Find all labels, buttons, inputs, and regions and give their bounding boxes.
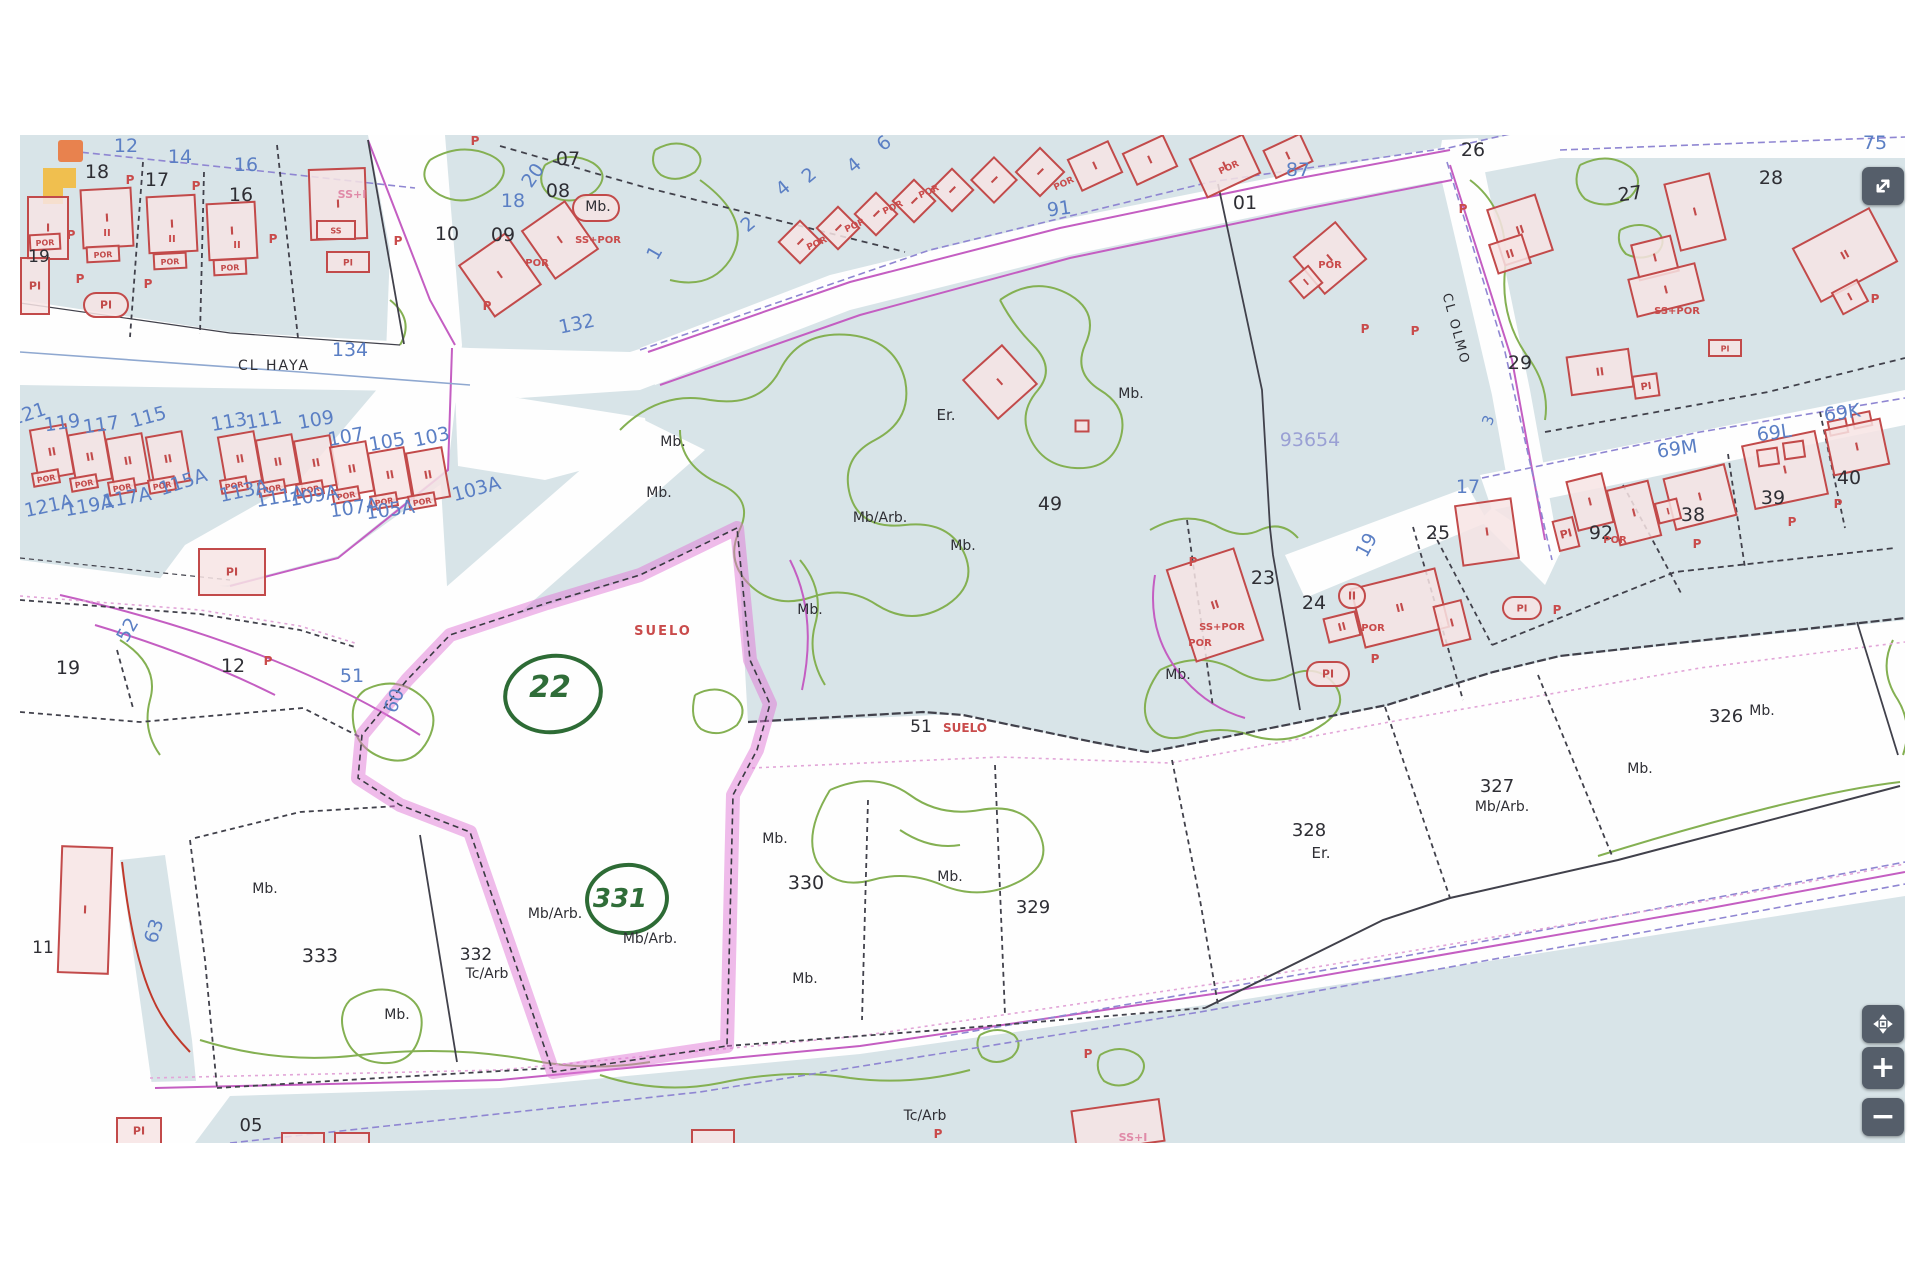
house-label: I (46, 222, 50, 235)
map-label: 08 (546, 180, 570, 202)
map-label: P (1084, 1047, 1093, 1061)
map-label: SS+POR (575, 235, 621, 246)
house: I (207, 202, 258, 260)
house-label: POR (93, 250, 112, 260)
map-label: 329 (1016, 897, 1050, 918)
map-label: P (934, 1127, 943, 1141)
house-label: SS (330, 226, 341, 236)
house-label: PI (343, 259, 353, 269)
map-label: Mb. (797, 602, 822, 618)
map-label: P (126, 173, 135, 187)
map-label: 87 (1286, 159, 1310, 181)
map-label: 24 (1302, 592, 1326, 614)
map-label: Mb. (1627, 761, 1652, 777)
map-label: P (394, 234, 403, 248)
house: II (1339, 584, 1365, 608)
map-label: Mb. (762, 831, 787, 847)
map-label: P (67, 228, 76, 242)
map-label: Mb. (937, 869, 962, 885)
map-label: 328 (1292, 820, 1326, 841)
map-label: P (1361, 322, 1370, 336)
house-label: PI (226, 566, 238, 579)
house: POR (87, 246, 120, 263)
map-label: 333 (302, 945, 338, 967)
house (1757, 448, 1779, 467)
map-label: Mb. (1165, 667, 1190, 683)
map-label: 01 (1233, 192, 1257, 214)
map-label: P (1459, 202, 1468, 216)
house-label: I (170, 217, 175, 230)
house-label: I (230, 224, 235, 237)
map-label: P (1871, 292, 1880, 306)
map-label: 327 (1480, 776, 1514, 797)
map-label: Tc/Arb (903, 1108, 947, 1124)
map-label: 75 (1863, 132, 1887, 154)
map-label: 12 (114, 135, 138, 157)
map-label: Mb. (1118, 386, 1143, 402)
orange-plan-mark (58, 140, 83, 162)
house-label: II (1348, 590, 1356, 603)
map-label: 330 (788, 872, 824, 894)
house-label: PI (29, 280, 41, 293)
map-label: Mb/Arb. (623, 931, 677, 947)
map-label: 91 (1046, 196, 1073, 221)
house-label: PI (100, 299, 112, 312)
house-label: PI (1322, 668, 1334, 681)
map-label: 27 (1617, 181, 1644, 206)
map-label: 29 (1508, 352, 1532, 374)
house: PI (1709, 340, 1741, 356)
zoom-out-label: − (1870, 1102, 1895, 1132)
map-label: P (1411, 324, 1420, 338)
map-label: SS+POR (1654, 306, 1700, 317)
house (1076, 421, 1089, 432)
map-label: P (1788, 515, 1797, 529)
map-label: Er. (936, 406, 955, 424)
map-label: CL HAYA (238, 358, 310, 374)
map-label: 14 (168, 146, 192, 168)
house: POR (214, 259, 247, 276)
house: I (1455, 498, 1519, 565)
house-label: POR (160, 257, 179, 267)
map-label: 16 (229, 184, 253, 206)
map-label: 22 (529, 670, 571, 705)
map-label: 19 (56, 657, 80, 679)
map-label: P (1553, 603, 1562, 617)
expand-icon (1870, 173, 1896, 199)
house: PI (199, 549, 265, 595)
map-label: Mb. (660, 434, 685, 450)
map-label: POR (525, 258, 549, 269)
house: PI (327, 252, 369, 272)
map-label: 23 (1251, 567, 1275, 589)
house: I (81, 188, 134, 249)
house: PI (1503, 597, 1541, 619)
house-label: I (105, 211, 110, 224)
pan-icon (1870, 1011, 1896, 1037)
map-label: 17 (145, 169, 169, 191)
house: II (1567, 349, 1634, 395)
map-label: 134 (332, 339, 368, 361)
map-label: Mb. (585, 199, 610, 215)
map-label: POR (1603, 535, 1627, 546)
house-label: PI (1640, 381, 1652, 393)
map-label: P (1693, 537, 1702, 551)
map-label: Mb/Arb. (1475, 799, 1529, 815)
map-label: 11 (32, 938, 54, 958)
map-label: 16 (234, 154, 258, 176)
house-label: PI (1517, 604, 1528, 615)
map-label: 07 (556, 148, 580, 170)
map-label: P (76, 272, 85, 286)
map-label: 19 (28, 247, 50, 267)
house: PI (117, 1118, 161, 1144)
map-label: P (471, 134, 480, 148)
map-label: SUELO (943, 721, 987, 735)
map-label: 26 (1461, 139, 1485, 161)
map-label: 93654 (1280, 429, 1340, 451)
cadastral-map-viewer: IIIIPORPORPORPORPIPIISSPIIIIIIIIIIIIIIII… (0, 0, 1920, 1280)
map-canvas[interactable]: IIIIPORPORPORPORPIPIISSPIIIIIIIIIIIIIIII… (0, 0, 1920, 1280)
house-label: PI (133, 1125, 145, 1138)
map-label: P (269, 232, 278, 246)
map-label: 51 (340, 665, 364, 687)
map-label: Mb. (646, 485, 671, 501)
map-label: 17 (1456, 476, 1480, 498)
map-label: SS+I (338, 188, 367, 201)
map-label: Mb. (792, 971, 817, 987)
map-label: 40 (1837, 467, 1861, 489)
fullscreen-button[interactable] (1862, 167, 1904, 205)
house (1783, 441, 1805, 460)
map-label: P (1371, 652, 1380, 666)
map-label: 25 (1426, 522, 1450, 544)
map-label: II (233, 240, 240, 251)
map-label: P (1834, 497, 1843, 511)
house: PI (1307, 662, 1349, 686)
house: SS (317, 221, 355, 239)
map-label: P (264, 654, 273, 668)
zoom-in-button[interactable]: + (1862, 1047, 1904, 1089)
house: POR (154, 253, 187, 270)
map-label: Mb/Arb. (528, 906, 582, 922)
map-label: 09 (491, 224, 515, 246)
map-label: Mb. (1749, 703, 1774, 719)
map-label: 18 (501, 190, 525, 212)
zoom-in-label: + (1870, 1053, 1895, 1083)
pan-button[interactable] (1862, 1005, 1904, 1043)
house: I (58, 846, 112, 974)
map-label: POR (1318, 260, 1342, 271)
map-label: 51 (910, 717, 932, 737)
map-label: 12 (221, 655, 245, 677)
map-label: P (192, 179, 201, 193)
house: I (1655, 499, 1681, 524)
map-label: II (168, 234, 175, 245)
house-label: PI (1721, 345, 1730, 354)
map-label: P (144, 277, 153, 291)
map-label: Tc/Arb (465, 966, 509, 982)
house-label: POR (220, 263, 239, 273)
map-label: 28 (1759, 167, 1783, 189)
map-label: SUELO (634, 624, 692, 639)
map-label: 331 (593, 884, 647, 914)
map-label: 05 (240, 1115, 263, 1136)
map-label: II (103, 228, 110, 239)
map-label: Er. (1311, 844, 1330, 862)
house: PI (1633, 373, 1660, 398)
map-label: 18 (85, 161, 109, 183)
map-label: Mb. (384, 1007, 409, 1023)
map-label: 326 (1709, 706, 1743, 727)
map-label: 332 (460, 945, 492, 965)
map-label: 10 (435, 223, 459, 245)
map-label: Mb. (950, 538, 975, 554)
map-label: P (1189, 555, 1198, 569)
map-label: 39 (1761, 487, 1785, 509)
map-label: POR (1361, 623, 1385, 634)
map-label: P (483, 299, 492, 313)
map-label: Mb/Arb. (853, 510, 907, 526)
map-label: 49 (1038, 493, 1062, 515)
map-label: SS+POR (1199, 622, 1245, 633)
map-label: 38 (1681, 504, 1705, 526)
zoom-out-button[interactable]: − (1862, 1098, 1904, 1136)
map-label: Mb. (252, 881, 277, 897)
map-label: SS+I (1119, 1131, 1148, 1144)
house-label: I (83, 903, 88, 916)
house: PI (84, 293, 128, 317)
map-label: POR (1188, 638, 1212, 649)
